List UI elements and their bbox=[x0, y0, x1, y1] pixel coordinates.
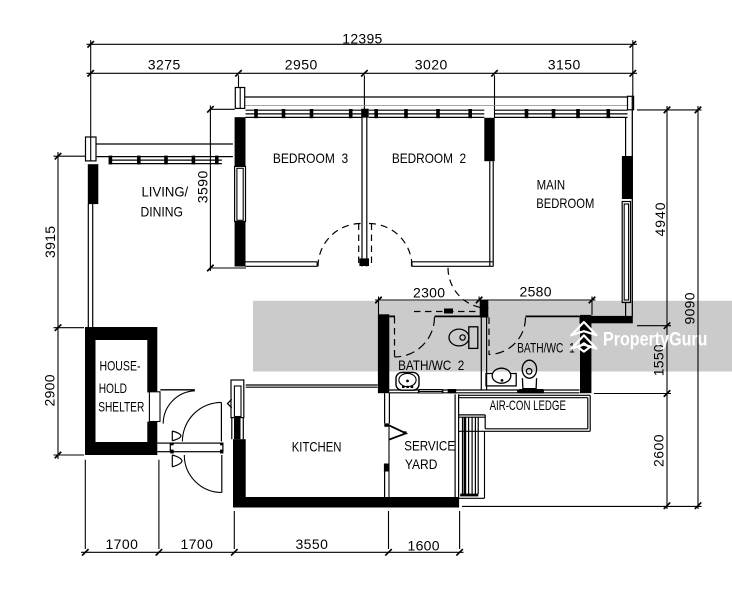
svg-text:3150: 3150 bbox=[548, 56, 581, 72]
svg-text:DINING: DINING bbox=[141, 203, 184, 219]
svg-text:2600: 2600 bbox=[651, 434, 667, 467]
svg-text:YARD: YARD bbox=[405, 456, 438, 472]
svg-text:2300: 2300 bbox=[413, 285, 445, 301]
svg-text:BEDROOM 3: BEDROOM 3 bbox=[273, 150, 348, 166]
svg-text:3550: 3550 bbox=[295, 536, 328, 552]
svg-text:BEDROOM: BEDROOM bbox=[536, 195, 594, 211]
svg-text:2580: 2580 bbox=[520, 284, 552, 300]
svg-text:1700: 1700 bbox=[105, 536, 138, 552]
svg-text:2900: 2900 bbox=[42, 374, 58, 406]
svg-text:3275: 3275 bbox=[148, 56, 181, 72]
svg-text:HOLD: HOLD bbox=[99, 380, 127, 396]
svg-text:2950: 2950 bbox=[285, 56, 318, 72]
svg-text:AIR-CON LEDGE: AIR-CON LEDGE bbox=[490, 397, 566, 413]
svg-text:1600: 1600 bbox=[408, 538, 440, 554]
svg-text:MAIN: MAIN bbox=[537, 176, 566, 192]
svg-text:3915: 3915 bbox=[42, 226, 58, 258]
svg-text:KITCHEN: KITCHEN bbox=[292, 439, 342, 455]
svg-text:PropertyGuru: PropertyGuru bbox=[603, 330, 708, 351]
svg-text:SHELTER: SHELTER bbox=[98, 398, 144, 414]
svg-text:LIVING/: LIVING/ bbox=[142, 184, 189, 200]
svg-text:1700: 1700 bbox=[180, 536, 213, 552]
svg-text:3020: 3020 bbox=[415, 56, 448, 72]
svg-text:BEDROOM 2: BEDROOM 2 bbox=[392, 150, 466, 166]
svg-text:3590: 3590 bbox=[195, 171, 211, 204]
svg-text:HOUSE-: HOUSE- bbox=[100, 357, 141, 373]
svg-text:SERVICE: SERVICE bbox=[404, 437, 455, 453]
svg-text:4940: 4940 bbox=[652, 202, 668, 236]
svg-text:12395: 12395 bbox=[342, 30, 382, 46]
